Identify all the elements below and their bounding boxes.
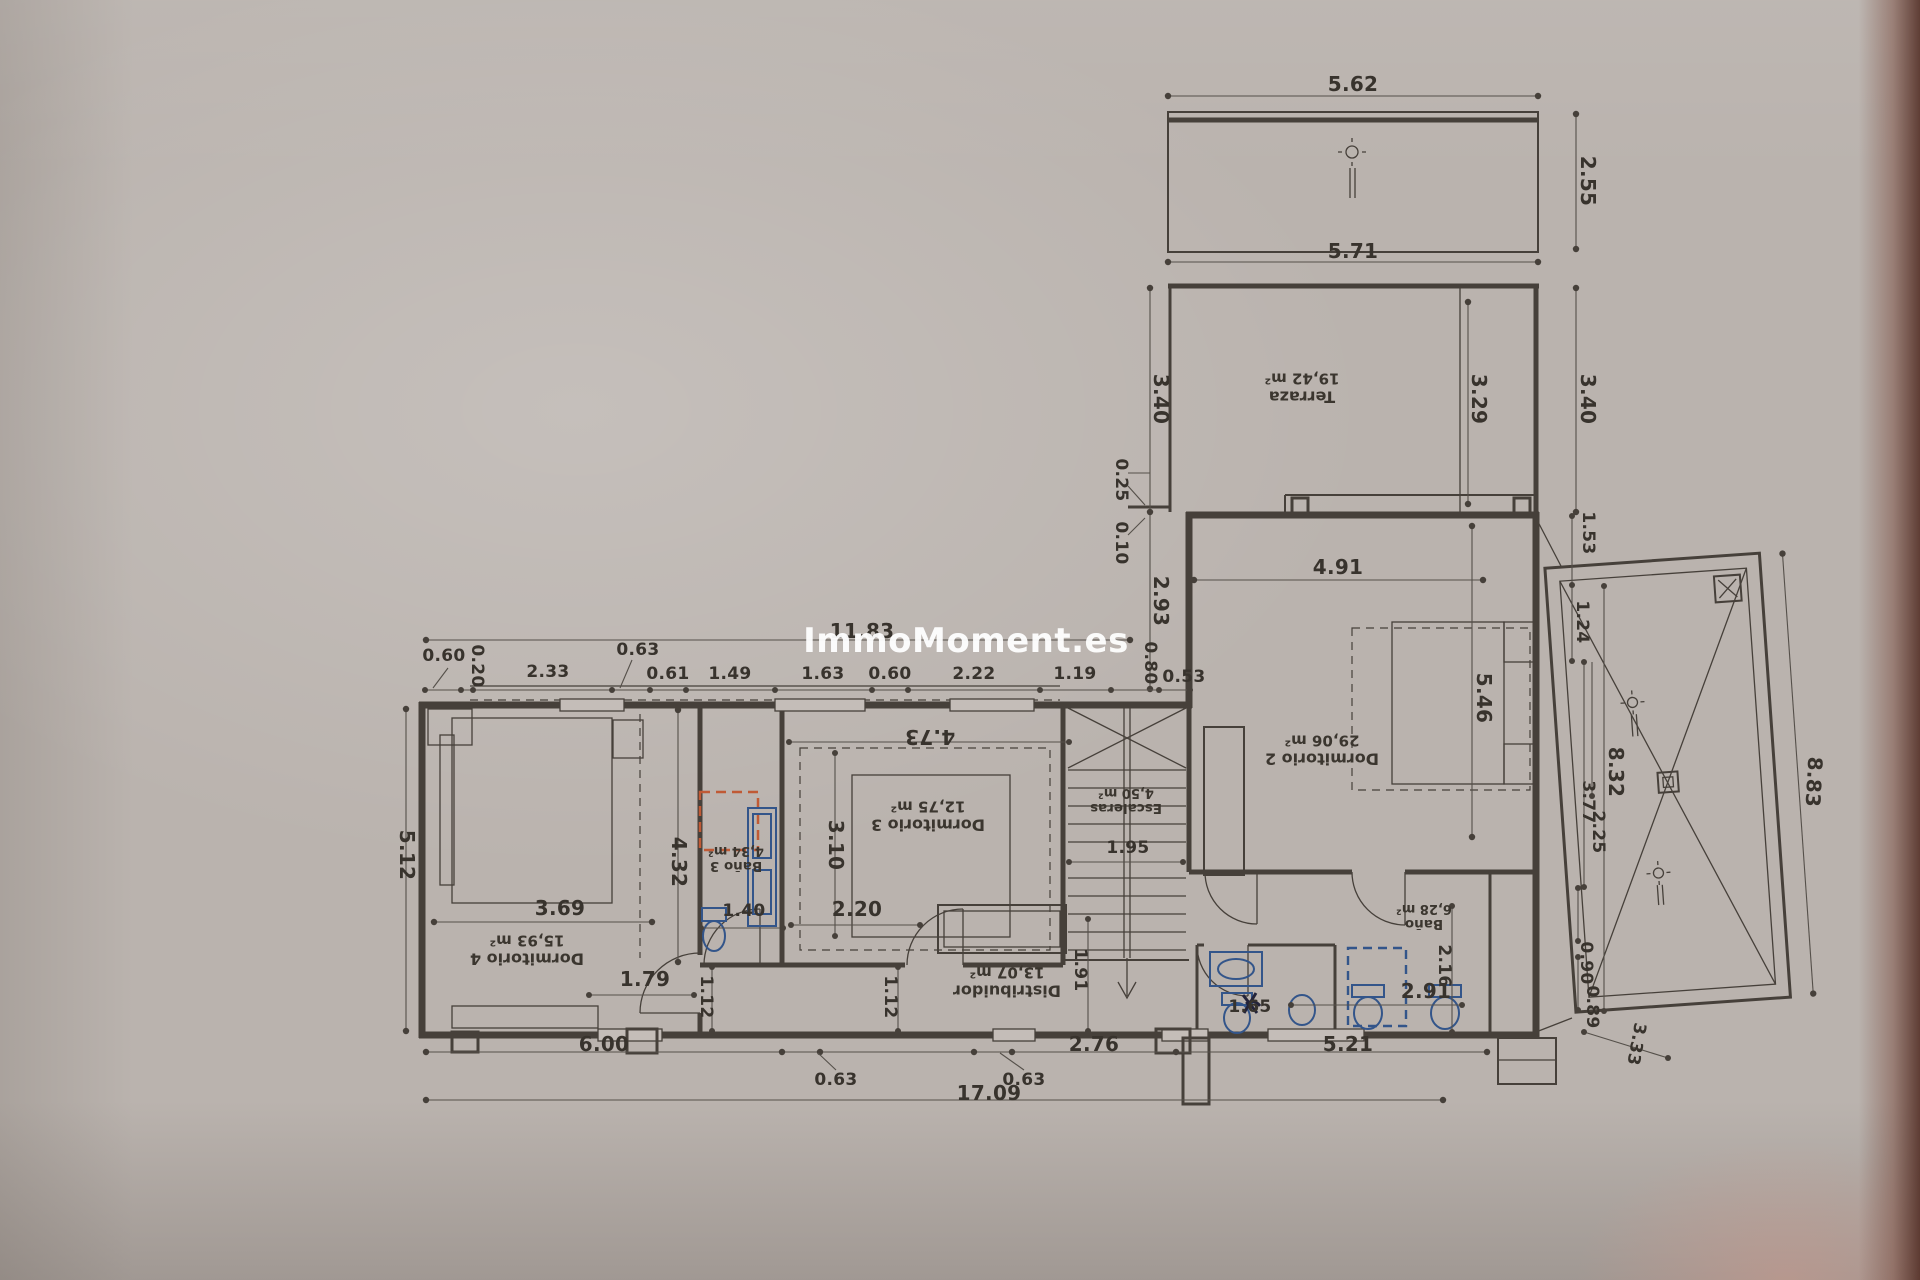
dim-label: 2.22 bbox=[952, 664, 995, 684]
dim-label: 0.20 bbox=[467, 644, 487, 687]
pergola-annotation bbox=[1338, 138, 1366, 198]
room-label-dormitorio-3: Dormitorio 3 12,75 m² bbox=[871, 797, 985, 834]
dim-label: 1.19 bbox=[1053, 664, 1096, 684]
dim-label: 2.93 bbox=[1149, 576, 1173, 627]
dim-label: 2.76 bbox=[1069, 1032, 1120, 1056]
room-label-bano: Baño 6,28 m² bbox=[1396, 900, 1452, 932]
walls bbox=[419, 112, 1572, 1104]
dim-label: 0.60 bbox=[422, 646, 465, 666]
dim-label: 1.24 bbox=[1572, 600, 1592, 643]
watermark: ImmoMoment.es bbox=[803, 621, 1129, 661]
dim-label: 8.83 bbox=[1801, 756, 1828, 808]
room-label-terraza: Terraza 19,42 m² bbox=[1265, 369, 1340, 406]
dim-label: 4.91 bbox=[1313, 555, 1364, 579]
dim-label: 0.60 bbox=[868, 664, 911, 684]
dim-label: 4.73 bbox=[905, 725, 956, 749]
dim-label: 6.00 bbox=[579, 1032, 630, 1056]
dim-label: 1.12 bbox=[696, 975, 716, 1018]
dim-label: 1.12 bbox=[880, 975, 900, 1018]
dim-label: 0.63 bbox=[616, 640, 659, 660]
dim-label: 0.25 bbox=[1111, 458, 1131, 501]
dim-label: 5.62 bbox=[1328, 72, 1379, 96]
bathroom-fixtures bbox=[700, 792, 1461, 1033]
dim-label: 0.10 bbox=[1111, 521, 1131, 564]
dim-label: 1.53 bbox=[1578, 511, 1598, 554]
dim-label: 5.12 bbox=[395, 830, 419, 881]
dim-label: 0.63 bbox=[814, 1070, 857, 1090]
dim-label: 2.33 bbox=[526, 662, 569, 682]
dim-label: 2.55 bbox=[1576, 156, 1600, 207]
dim-label: 0.61 bbox=[646, 664, 689, 684]
dim-label: 1.91 bbox=[1070, 948, 1090, 991]
dim-label: 2.20 bbox=[832, 897, 883, 921]
dimension-lines bbox=[403, 93, 1671, 1103]
floor-plan-photo: 5.62 5.71 4.91 11.83 0.60 0.20 2.33 0.63… bbox=[0, 0, 1920, 1280]
dim-label: 2.16 bbox=[1434, 944, 1454, 987]
slope-annotation-icon bbox=[1627, 697, 1638, 708]
dim-label: 1.65 bbox=[1228, 997, 1271, 1017]
dim-label: 17.09 bbox=[957, 1081, 1022, 1105]
room-label-distribuidor: Distribuidor 13,07 m² bbox=[953, 963, 1061, 1000]
slope-annotation-icon bbox=[1653, 868, 1664, 879]
dim-label: 0.89 bbox=[1582, 985, 1602, 1028]
dim-label: 3.40 bbox=[1576, 374, 1600, 425]
room-label-bano-3: Baño 3 4,34 m² bbox=[708, 842, 764, 874]
dim-label: 0.53 bbox=[1162, 667, 1205, 687]
room-label-dormitorio-2: Dormitorio 2 29,06 m² bbox=[1265, 731, 1379, 768]
dim-label: 0.90 bbox=[1576, 941, 1596, 984]
dim-label: 1.40 bbox=[722, 901, 765, 921]
shower-bath bbox=[1348, 948, 1406, 1026]
room-label-escaleras: Escaleras 4,50 m² bbox=[1090, 784, 1162, 816]
toilet-bath-1 bbox=[1352, 985, 1384, 997]
dim-label: 0.80 bbox=[1140, 641, 1160, 684]
room-label-dormitorio-4: Dormitorio 4 15,93 m² bbox=[470, 931, 584, 968]
bidet-bath bbox=[1289, 995, 1315, 1025]
dim-label: 8.32 bbox=[1604, 747, 1628, 798]
dim-label: 1.63 bbox=[801, 664, 844, 684]
dim-label: 3.40 bbox=[1149, 374, 1173, 425]
dim-label: 3.10 bbox=[824, 820, 848, 871]
dim-label: 3.29 bbox=[1467, 374, 1491, 425]
dim-label: 5.46 bbox=[1472, 673, 1496, 724]
dim-label: 3.69 bbox=[535, 896, 586, 920]
dim-label: 1.49 bbox=[708, 664, 751, 684]
dim-label: 5.21 bbox=[1323, 1032, 1374, 1056]
dim-label: 5.71 bbox=[1328, 239, 1379, 263]
dim-label: 1.95 bbox=[1106, 838, 1149, 858]
dim-label: 2.25 bbox=[1588, 810, 1608, 853]
dim-label: 1.79 bbox=[620, 967, 671, 991]
dim-label: 4.32 bbox=[667, 837, 691, 888]
